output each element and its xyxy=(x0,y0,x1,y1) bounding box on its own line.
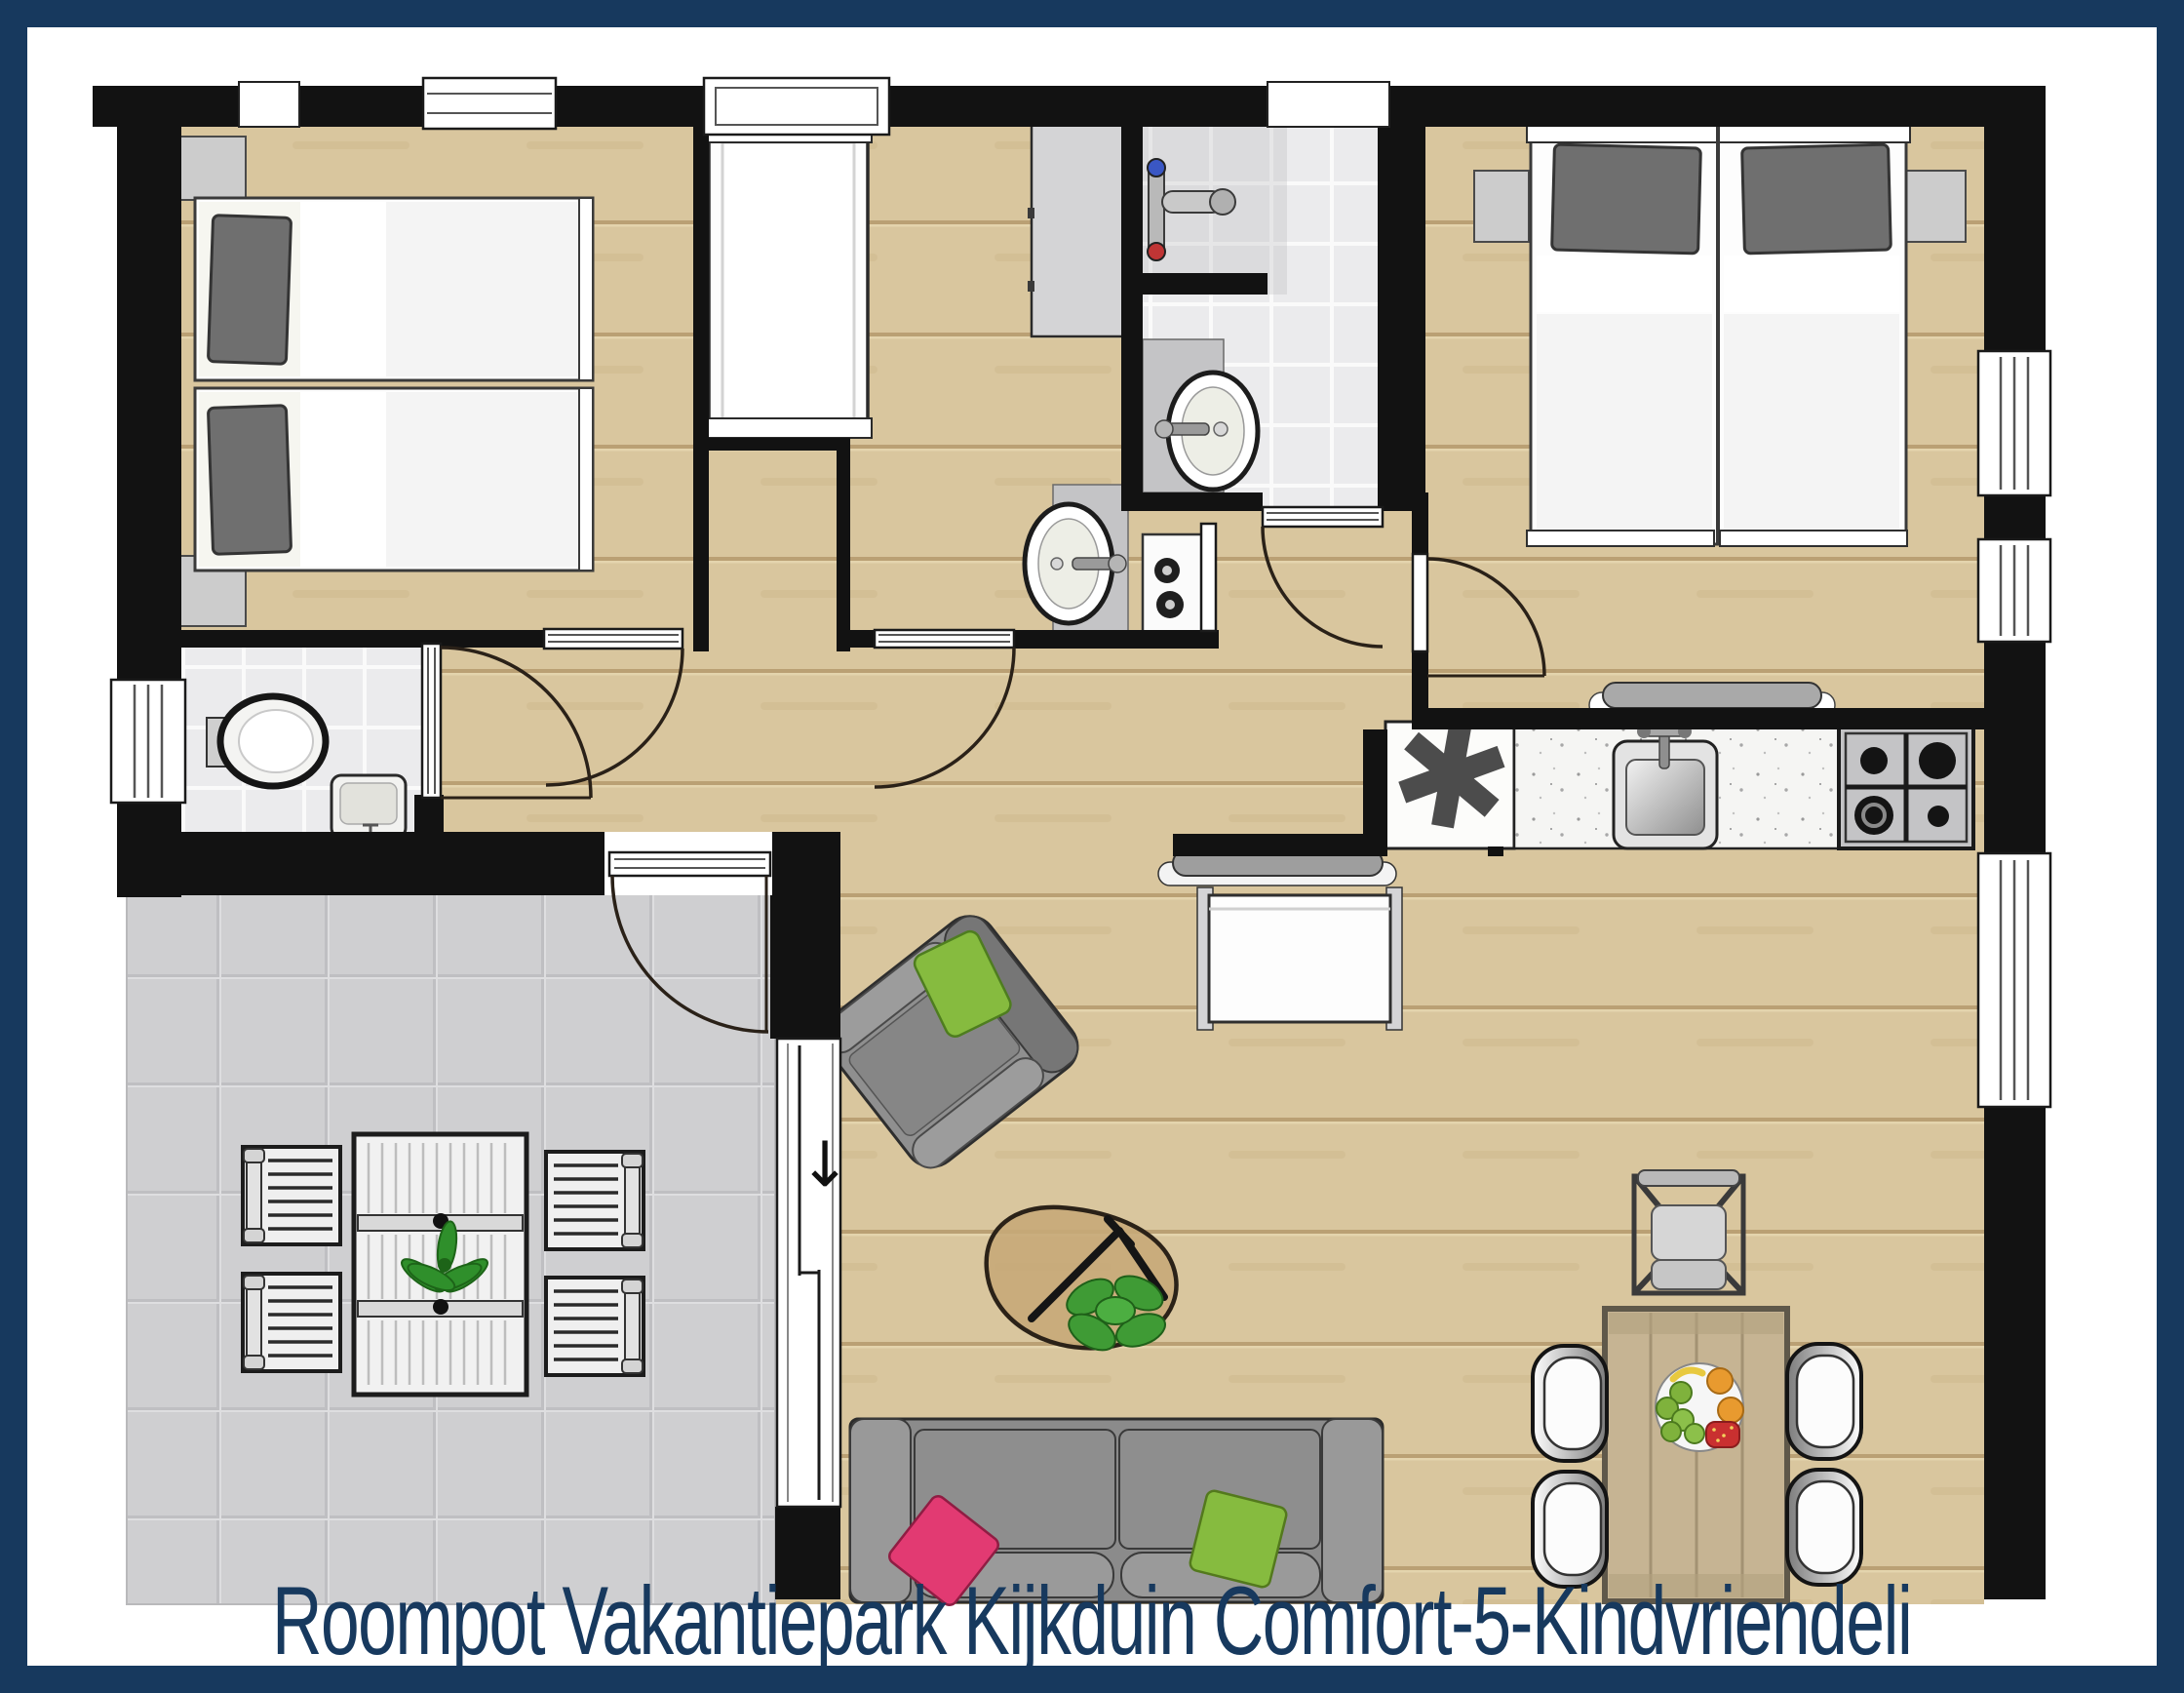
wardrobe xyxy=(1028,122,1124,336)
window xyxy=(1978,351,2050,495)
dining-chair xyxy=(1787,1344,1861,1459)
boiler-unit xyxy=(1143,534,1203,634)
nightstand xyxy=(1474,171,1529,242)
wall-east xyxy=(1984,86,2046,1599)
terrace-table xyxy=(354,1134,526,1395)
gas-hob xyxy=(1839,727,1973,848)
floor-plan-page: ✱ xyxy=(0,0,2184,1693)
window xyxy=(1978,853,2050,1107)
hand-basin xyxy=(331,775,406,838)
terrace-chair xyxy=(243,1274,340,1371)
caption-text: Roompot Vakantiepark Kijkduin Comfort-5-… xyxy=(272,1565,1911,1676)
terrace-chair xyxy=(546,1152,643,1249)
caption: Roompot Vakantiepark Kijkduin Comfort-5-… xyxy=(0,1572,2184,1670)
side-table xyxy=(1209,895,1390,1022)
window xyxy=(111,680,185,803)
single-bed xyxy=(195,198,593,380)
window xyxy=(704,78,889,135)
window xyxy=(1267,82,1389,127)
single-bed xyxy=(195,388,593,571)
bedroom-left xyxy=(180,137,593,626)
wall-north xyxy=(93,86,2046,127)
terrace-chair xyxy=(243,1147,340,1244)
sliding-door: ↓ xyxy=(777,1039,851,1507)
nightstand xyxy=(180,137,246,200)
terrace-chair xyxy=(546,1278,643,1375)
fruit-bowl xyxy=(1656,1363,1743,1451)
hot-knob xyxy=(1148,243,1165,260)
window xyxy=(423,78,556,129)
floor-plan: ✱ xyxy=(0,0,2184,1693)
window xyxy=(239,82,299,127)
cold-knob xyxy=(1148,159,1165,177)
double-bed xyxy=(1527,121,1910,546)
slide-arrow-icon: ↓ xyxy=(799,1129,851,1201)
window xyxy=(1978,539,2050,642)
dining-chair xyxy=(1533,1346,1607,1461)
closet-door xyxy=(1201,524,1216,631)
bunk-bed xyxy=(705,123,872,438)
nightstand xyxy=(1903,171,1966,242)
